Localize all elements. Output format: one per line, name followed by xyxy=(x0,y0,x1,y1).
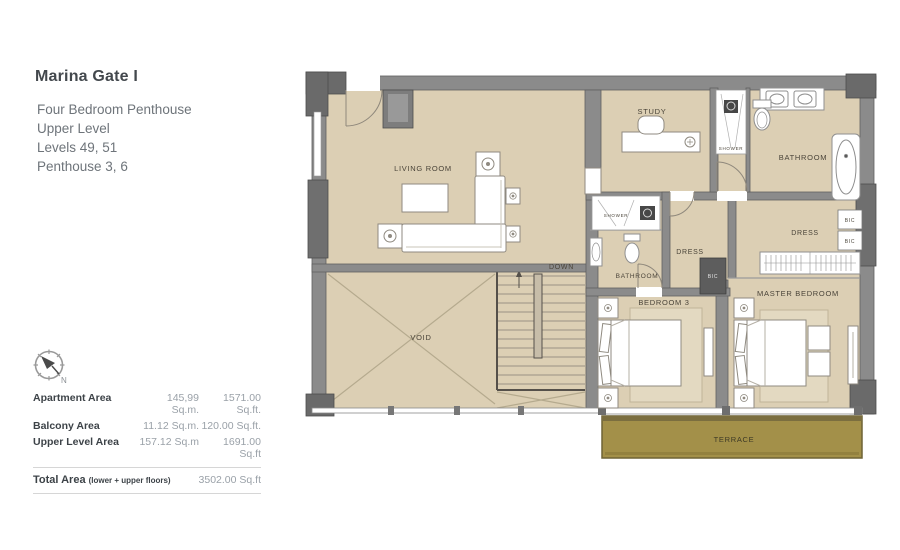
area-label: Balcony Area xyxy=(33,420,137,432)
desk-chair xyxy=(638,116,664,134)
terrace-label: TERRACE xyxy=(714,435,755,444)
study-label: STUDY xyxy=(638,107,667,116)
void-label: VOID xyxy=(410,333,431,342)
area-sqft: 1691.00 Sq.ft xyxy=(199,436,261,460)
shower-head-icon xyxy=(640,206,655,220)
total-row: Total Area (lower + upper floors) 3502.0… xyxy=(33,474,261,486)
toilet xyxy=(754,108,770,130)
coffee-table xyxy=(402,184,448,212)
compass-icon: N xyxy=(28,346,76,397)
toilet-tank xyxy=(753,100,771,108)
console xyxy=(704,328,713,376)
bed-mattress xyxy=(611,320,681,386)
dresser xyxy=(808,326,830,350)
bed-mattress xyxy=(747,320,806,386)
master-dress-label: DRESS xyxy=(791,230,819,237)
table-divider xyxy=(33,493,261,494)
floor-plan-page: Marina Gate I Four Bedroom Penthouse Upp… xyxy=(0,0,900,550)
bedroom3-dress-label: DRESS xyxy=(676,249,704,256)
master-shower-label: SHOWER xyxy=(719,146,744,151)
area-table: Apartment Area 145,99 Sq.m. 1571.00 Sq.f… xyxy=(33,392,261,500)
compass-north-label: N xyxy=(61,376,67,385)
area-sqft: 120.00 Sq.ft. xyxy=(199,420,261,432)
bic-label: BIC xyxy=(845,239,855,245)
bedroom3-bathroom-label: BATHROOM xyxy=(616,273,659,280)
sofa-horizontal-arm xyxy=(402,224,506,252)
bic-label: BIC xyxy=(708,274,718,280)
floor-plan: LIVING ROOM DOWN VOID STUDY SHOWER BATHR… xyxy=(298,64,890,473)
master-bathroom-label: BATHROOM xyxy=(779,153,827,162)
area-label: Apartment Area xyxy=(33,392,137,404)
description-line: Levels 49, 51 xyxy=(37,138,192,157)
table-row: Balcony Area 11.12 Sq.m. 120.00 Sq.ft. xyxy=(33,420,261,432)
description-line: Upper Level xyxy=(37,119,192,138)
down-label: DOWN xyxy=(549,264,574,271)
total-note: (lower + upper floors) xyxy=(89,476,171,485)
description-line: Penthouse 3, 6 xyxy=(37,157,192,176)
bic-label: BIC xyxy=(845,218,855,224)
table-row: Upper Level Area 157.12 Sq.m 1691.00 Sq.… xyxy=(33,436,261,460)
master-bedroom-label: MASTER BEDROOM xyxy=(757,289,839,298)
living-room-label: LIVING ROOM xyxy=(394,164,452,173)
page-title: Marina Gate I xyxy=(35,68,138,86)
bedroom3-label: BEDROOM 3 xyxy=(638,298,689,307)
area-sqm: 11.12 Sq.m. xyxy=(137,420,199,432)
toilet-tank xyxy=(624,234,640,241)
area-sqft: 1571.00 Sq.ft. xyxy=(199,392,261,416)
total-value: 3502.00 Sq.ft xyxy=(199,474,261,486)
dresser xyxy=(808,352,830,376)
toilet xyxy=(625,243,639,263)
table-divider xyxy=(33,467,261,468)
area-label: Upper Level Area xyxy=(33,436,137,448)
plan-description: Four Bedroom Penthouse Upper Level Level… xyxy=(37,100,192,176)
bedroom3-shower-label: SHOWER xyxy=(604,213,629,218)
master-shower xyxy=(716,90,746,154)
description-line: Four Bedroom Penthouse xyxy=(37,100,192,119)
area-sqm: 145,99 Sq.m. xyxy=(137,392,199,416)
cabinet xyxy=(585,168,601,194)
area-sqm: 157.12 Sq.m xyxy=(137,436,199,448)
table-row: Apartment Area 145,99 Sq.m. 1571.00 Sq.f… xyxy=(33,392,261,416)
total-label: Total Area xyxy=(33,474,86,486)
sink xyxy=(794,91,816,107)
